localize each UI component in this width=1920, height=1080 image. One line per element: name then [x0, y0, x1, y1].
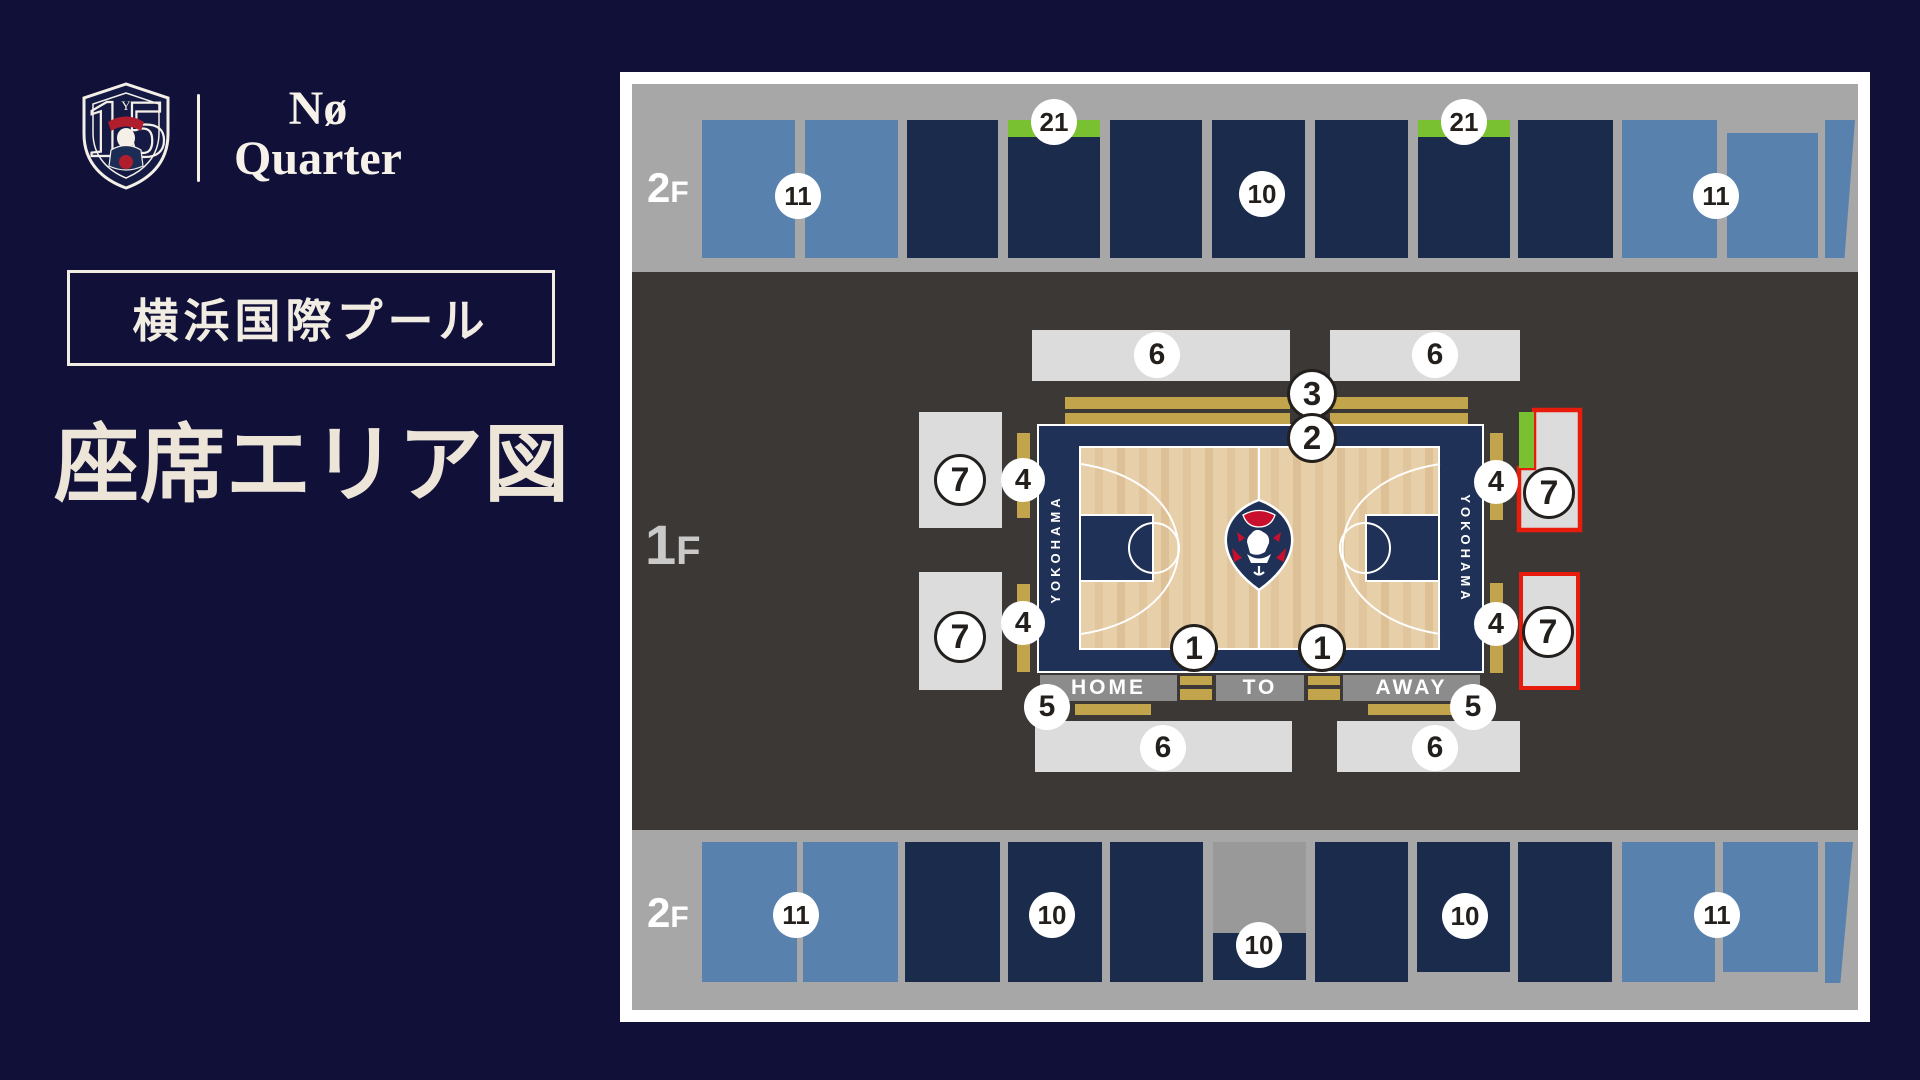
- court-side-text-right: YOKOHAMA: [1458, 494, 1473, 603]
- floor-suffix: F: [670, 901, 688, 934]
- seat-block: [907, 120, 998, 258]
- team-wordmark: Nø Quarter: [210, 84, 426, 184]
- floor-suffix: F: [676, 529, 700, 573]
- area-badge-1: 1: [1170, 624, 1218, 672]
- area-badge-11: 11: [773, 892, 819, 938]
- bench-bar: [1075, 704, 1151, 715]
- area-badge-11: 11: [775, 173, 821, 219]
- seat-block: [1315, 842, 1408, 982]
- bench-bar: [1368, 704, 1452, 715]
- bench-bar: [1308, 689, 1340, 700]
- area-badge-4: 4: [1474, 602, 1518, 646]
- floor-label-2F: 2F: [647, 889, 689, 937]
- logo-divider: [197, 94, 200, 182]
- area-badge-4: 4: [1001, 458, 1045, 502]
- bench-bar: [1308, 676, 1340, 685]
- floor-suffix: F: [670, 176, 688, 209]
- seat-block: [1727, 133, 1818, 258]
- bench-bar: [1330, 397, 1468, 409]
- area-badge-3: 3: [1287, 369, 1337, 419]
- bench-bar: [1065, 397, 1290, 409]
- area-badge-6: 6: [1134, 332, 1180, 378]
- area-badge-10: 10: [1029, 892, 1075, 938]
- bench-bar: [1065, 413, 1290, 424]
- seat-block: [1213, 842, 1306, 933]
- area-badge-4: 4: [1474, 460, 1518, 504]
- area-badge-7: 7: [1523, 467, 1575, 519]
- area-badge-1: 1: [1298, 624, 1346, 672]
- seat-block: [1518, 120, 1613, 258]
- area-badge-11: 11: [1693, 173, 1739, 219]
- wordmark-line2: Quarter: [210, 134, 426, 184]
- venue-name: 横浜国際プール: [133, 285, 490, 351]
- seat-block: [1315, 120, 1408, 258]
- seat-block: [1519, 412, 1534, 468]
- floor-label-2F: 2F: [647, 164, 689, 212]
- court-side-text-left: YOKOHAMA: [1048, 494, 1063, 603]
- area-badge-21: 21: [1441, 99, 1487, 145]
- area-badge-10: 10: [1236, 922, 1282, 968]
- floor-number: 2: [647, 889, 670, 936]
- area-badge-4: 4: [1001, 601, 1045, 645]
- area-badge-7: 7: [934, 611, 986, 663]
- area-badge-5: 5: [1024, 684, 1070, 730]
- pennant-letter: Y: [121, 98, 131, 113]
- area-badge-2: 2: [1287, 413, 1337, 463]
- floor-number: 2: [647, 164, 670, 211]
- seat-block: [1518, 842, 1612, 982]
- seat-map-panel: YOKOHAMA YOKOHAMA HOMETOAWAY112110211166…: [620, 72, 1870, 1022]
- floor-number: 1: [645, 513, 676, 576]
- seat-block: [905, 842, 1000, 982]
- team-bench-to: TO: [1216, 675, 1304, 701]
- team-crest-icon: [1217, 498, 1301, 592]
- area-badge-7: 7: [1522, 606, 1574, 658]
- area-badge-21: 21: [1031, 99, 1077, 145]
- bench-bar: [1180, 689, 1212, 700]
- seat-area-poster: 15 Y Nø Quarter 横浜国際プール 座席エリア図: [0, 0, 1920, 1080]
- area-badge-6: 6: [1412, 332, 1458, 378]
- area-badge-10: 10: [1442, 893, 1488, 939]
- area-badge-6: 6: [1412, 725, 1458, 771]
- area-badge-11: 11: [1694, 892, 1740, 938]
- area-badge-10: 10: [1239, 171, 1285, 217]
- anniversary-crest-icon: 15 Y: [66, 78, 186, 194]
- wordmark-line1: Nø: [210, 84, 426, 134]
- bench-bar: [1330, 413, 1468, 424]
- area-badge-5: 5: [1450, 684, 1496, 730]
- area-badge-6: 6: [1140, 725, 1186, 771]
- bench-bar: [1180, 676, 1212, 685]
- venue-name-box: 横浜国際プール: [67, 270, 555, 366]
- floor-label-1F: 1F: [645, 512, 701, 577]
- seat-block: [1110, 120, 1202, 258]
- page-title: 座席エリア図: [54, 396, 614, 519]
- area-badge-7: 7: [934, 454, 986, 506]
- seat-block: [1110, 842, 1203, 982]
